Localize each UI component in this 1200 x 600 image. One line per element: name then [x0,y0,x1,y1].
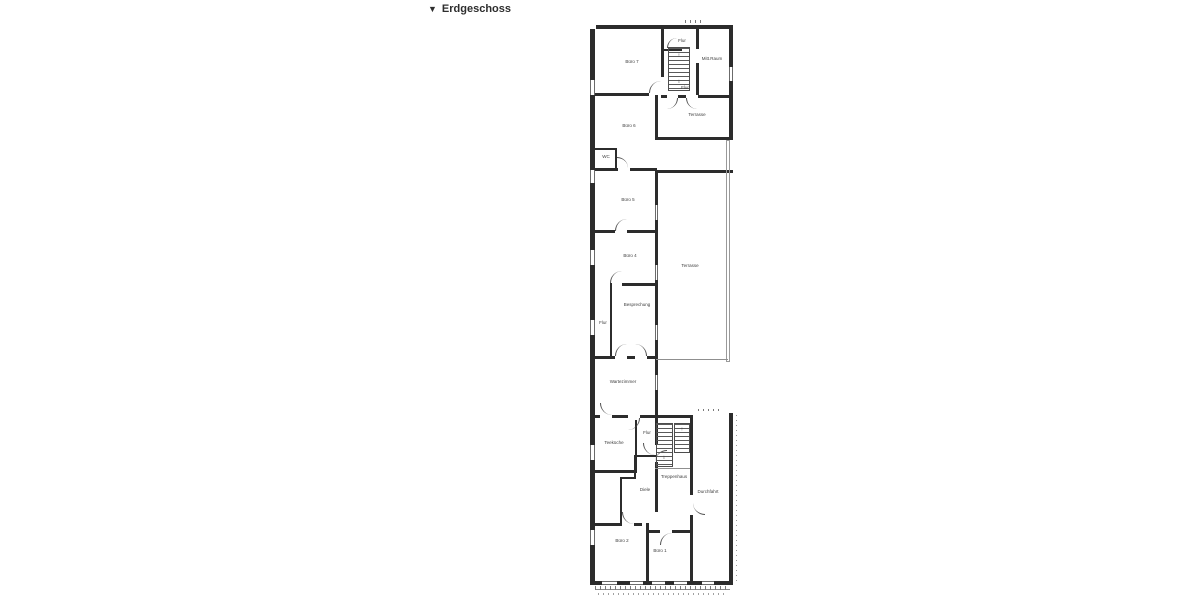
window [590,320,595,335]
dimension-line-right [736,415,737,585]
room-label-besprechung: Besprechung [624,303,651,308]
wall [696,29,699,49]
door-arc [660,533,672,545]
door-arc [617,157,628,168]
wall [696,63,699,95]
wall [595,230,615,233]
room-label-flur-entry: Flur [643,431,651,436]
room-label-buero-1: Büro 1 [653,549,666,554]
wall [640,415,692,418]
window [590,530,595,545]
wall [690,515,693,585]
room-label-teekueche: Teeküche [604,441,623,446]
window [602,581,617,585]
room-label-terrasse-main: Terrasse [681,264,698,269]
wall [655,137,733,140]
terrace-outline [656,359,728,360]
wall [634,455,636,479]
wall [655,95,658,137]
wall [678,95,686,98]
wall-outer-right-lower [729,413,733,585]
wall [610,283,612,356]
wall [655,462,658,512]
window [590,170,595,183]
door-arc [615,344,627,356]
door-arc [600,403,612,415]
room-label-flur-left: Flur [599,321,607,326]
stair-direction-arrow: ↓ [663,454,666,459]
wall [595,93,649,96]
wall-outer-left [590,29,595,585]
window [674,581,687,585]
room-label-terrasse-upper: Terrasse [688,113,705,118]
section-header[interactable]: ▼ Erdgeschoss [428,3,511,15]
window [652,581,665,585]
wall [690,415,693,495]
room-label-durchfahrt: Durchfahrt [697,490,718,495]
wall [595,148,617,150]
room-label-flur-top: Flur [678,39,686,44]
room-label-mitt-raum: Mitt.Raum [702,57,723,62]
wall [634,455,656,457]
door-arc [628,418,640,430]
room-label-wartezimmer: Wartezimmer [610,380,637,385]
wall [595,523,622,526]
window [655,325,658,340]
wall [646,530,660,533]
wall [634,523,642,526]
door-arc [635,344,647,356]
wall [661,29,664,77]
room-label-diele: Diele [640,488,650,493]
dimension-marks-entry [698,409,720,411]
floor-plan: ↑ ↓ ↓ ↑ Büro 7 Flur Mitt.Raum Flur Terra… [590,25,740,597]
room-label-buero-6: Büro 6 [622,124,635,129]
wall [595,470,637,473]
stair-direction-arrow: ↑ [681,426,684,431]
staircase-lower-flight-left [656,423,673,467]
stair-direction-arrow: ↑ [678,52,681,57]
door-arc [622,512,634,524]
room-label-wc: WC [602,155,610,160]
room-label-flur-mid: Flur [681,86,689,91]
wall [595,356,615,359]
stair-direction-arrow: ↓ [678,78,681,83]
door-arc [649,81,661,93]
window [590,250,595,265]
wall [627,230,657,233]
wall [672,530,690,533]
stair-enclosure-line [655,468,693,469]
wall-outer-right-upper [729,25,733,140]
wall [620,477,622,523]
wall [698,95,733,98]
room-label-buero-4: Büro 4 [623,254,636,259]
dimension-text-row-bottom [598,593,728,595]
window [630,581,643,585]
collapse-triangle-icon[interactable]: ▼ [428,4,437,15]
wall [630,168,657,171]
wall [595,168,618,171]
wall [612,415,628,418]
window [655,205,658,220]
room-label-buero-2: Büro 2 [615,539,628,544]
wall [627,356,635,359]
wall [595,415,600,418]
window [655,375,658,390]
window [590,445,595,460]
dimension-ticks-bottom [595,586,730,590]
wall [655,170,733,173]
window [702,581,714,585]
wall [620,477,635,479]
room-label-buero-7: Büro 7 [625,60,638,65]
door-arc [643,443,655,455]
door-arc [693,503,705,515]
room-label-buero-5: Büro 5 [621,198,634,203]
room-label-treppenhaus: Treppenhaus [661,475,687,480]
terrace-outline [726,140,730,362]
door-arc [667,98,678,109]
window [729,67,733,81]
wall [622,283,657,286]
door-arc [615,219,627,231]
wall-outer-top [596,25,733,29]
dimension-marks-top [685,20,703,23]
window [655,265,658,280]
door-arc [610,271,622,283]
section-title: Erdgeschoss [442,3,511,15]
door-arc [686,98,697,109]
